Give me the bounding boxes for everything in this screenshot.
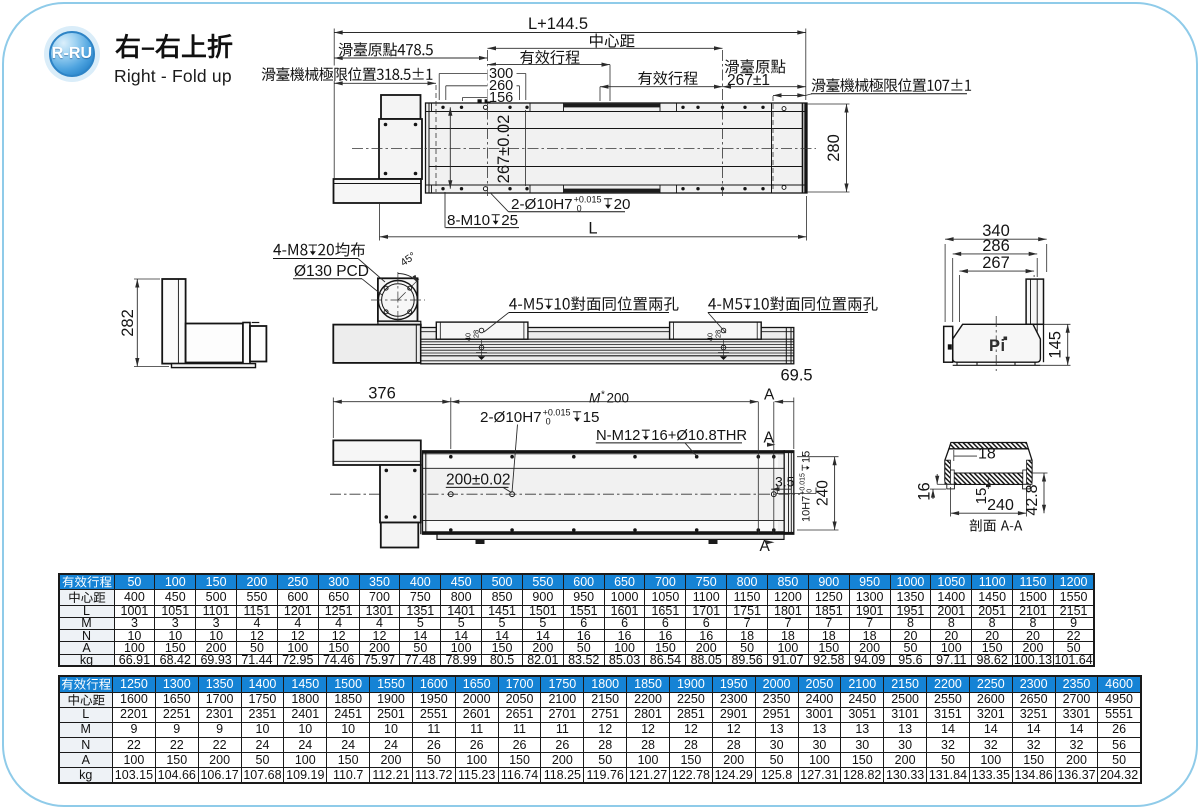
svg-text:10H7: 10H7 [801, 496, 813, 522]
svg-text:L+144.5: L+144.5 [528, 15, 588, 33]
svg-text:A: A [764, 387, 775, 404]
svg-text:A: A [760, 538, 771, 555]
svg-text:M: M [589, 390, 601, 405]
svg-text:45°: 45° [398, 250, 418, 269]
svg-text:200: 200 [607, 390, 630, 405]
svg-text:282: 282 [119, 309, 137, 337]
svg-text:15: 15 [583, 409, 600, 426]
svg-text:28: 28 [714, 330, 723, 338]
svg-text:0: 0 [546, 416, 551, 426]
svg-text:Ø130 PCD: Ø130 PCD [294, 263, 369, 280]
svg-text:156: 156 [489, 90, 513, 106]
svg-text:25: 25 [501, 212, 518, 229]
svg-text:69.5: 69.5 [781, 367, 813, 385]
svg-text:2-Ø10H7: 2-Ø10H7 [480, 409, 542, 426]
svg-text:267: 267 [982, 254, 1010, 272]
svg-text:267±0.02: 267±0.02 [495, 115, 513, 184]
svg-text:Pi: Pi [989, 337, 1006, 355]
svg-text:42.8: 42.8 [1024, 484, 1041, 515]
svg-text:0: 0 [807, 489, 814, 493]
svg-text:376: 376 [368, 385, 396, 403]
svg-text:18: 18 [978, 446, 996, 463]
svg-text:L: L [588, 220, 597, 238]
svg-text:280: 280 [825, 134, 843, 162]
svg-text:28: 28 [472, 330, 481, 338]
svg-text:16+Ø10.8THR: 16+Ø10.8THR [651, 428, 747, 444]
svg-text:*: * [601, 390, 605, 401]
svg-text:286: 286 [982, 237, 1010, 255]
svg-text:16: 16 [916, 482, 934, 500]
svg-text:8-M10: 8-M10 [447, 212, 490, 229]
svg-text:2-Ø10H7: 2-Ø10H7 [511, 196, 573, 213]
svg-text:20: 20 [614, 196, 631, 213]
svg-text:3.5: 3.5 [775, 474, 795, 490]
svg-text:N-M12: N-M12 [596, 428, 640, 444]
svg-text:145: 145 [1047, 331, 1065, 359]
svg-text:240: 240 [815, 480, 832, 506]
svg-text:240: 240 [987, 497, 1014, 514]
svg-text:267±1: 267±1 [727, 72, 770, 89]
svg-text:200±0.02: 200±0.02 [446, 471, 511, 488]
